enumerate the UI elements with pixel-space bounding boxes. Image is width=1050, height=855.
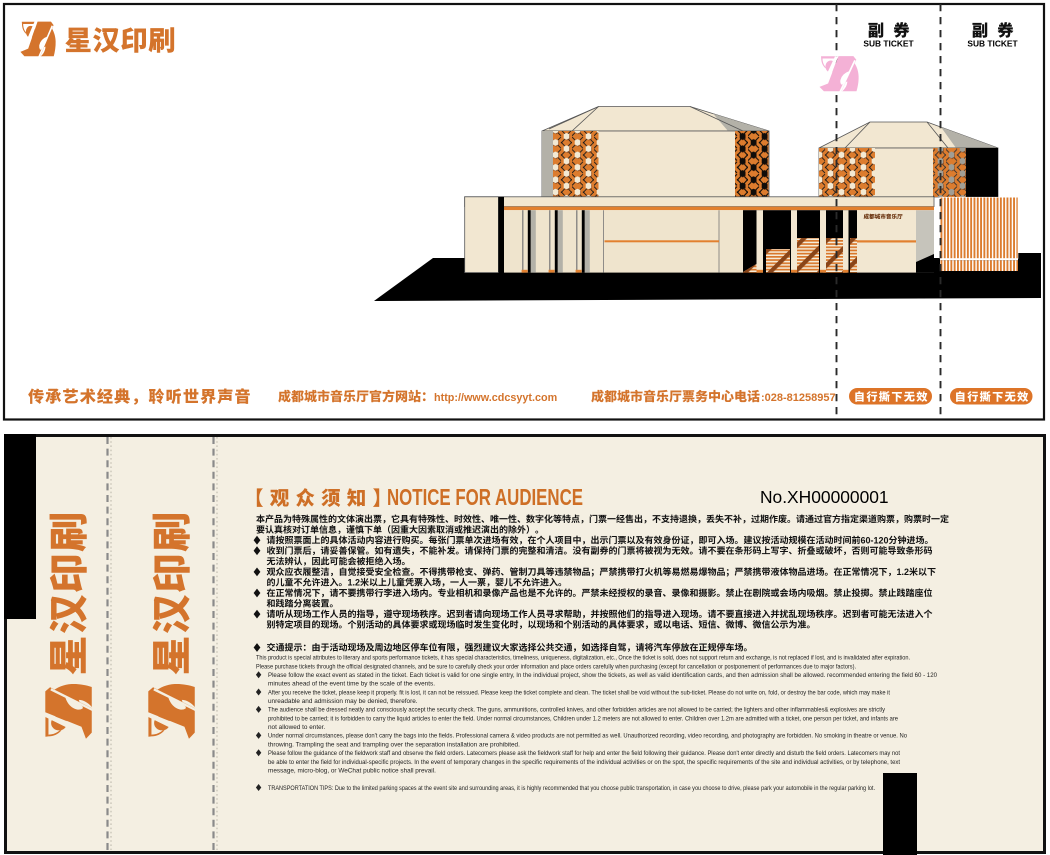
svg-text::028-81258957: :028-81258957 xyxy=(761,392,836,404)
svg-text:SUB TICKET: SUB TICKET xyxy=(863,39,914,49)
svg-text:http://www.cdcsyyt.com: http://www.cdcsyyt.com xyxy=(434,392,557,404)
svg-text:message, micro-blog, or WeChat: message, micro-blog, or WeChat public no… xyxy=(268,767,436,774)
svg-text:No.XH00000001: No.XH00000001 xyxy=(760,487,889,507)
svg-text:SUB TICKET: SUB TICKET xyxy=(967,39,1018,49)
svg-text:Under normal circumstances, pl: Under normal circumstances, please don't… xyxy=(268,733,907,740)
svg-text:Please follow the exact event: Please follow the exact event as stated … xyxy=(268,672,937,679)
svg-text:NOTICE FOR AUDIENCE: NOTICE FOR AUDIENCE xyxy=(387,484,583,510)
svg-text:1.2: 1.2 xyxy=(348,578,361,588)
svg-text:This product is special attrib: This product is special attributes to li… xyxy=(256,655,910,662)
svg-text:After you receive the ticket,: After you receive the ticket, please kee… xyxy=(268,689,890,696)
svg-text:prohibited to be carried; it i: prohibited to be carried; it is forbidde… xyxy=(268,715,898,722)
svg-text:unreadable and admission may b: unreadable and admission may be denied, … xyxy=(268,698,418,705)
svg-text:Please follow the guidance of: Please follow the guidance of the fieldw… xyxy=(268,750,900,757)
svg-text:60-120: 60-120 xyxy=(861,535,889,545)
svg-text:minutes ahead of the event tim: minutes ahead of the event time by the s… xyxy=(268,681,435,688)
svg-text:throwing. Trampling the seat a: throwing. Trampling the seat and trampli… xyxy=(268,741,520,748)
svg-text:1.2: 1.2 xyxy=(897,567,910,577)
svg-text:be able to enter the field for: be able to enter the field for individua… xyxy=(268,759,900,766)
svg-text:The audience shall be dressed: The audience shall be dressed neatly and… xyxy=(268,707,886,714)
svg-text:Please purchase tickets throug: Please purchase tickets through the offi… xyxy=(256,663,856,670)
svg-text:TRANSPORTATION TIPS: Due to th: TRANSPORTATION TIPS: Due to the limited … xyxy=(268,785,875,792)
svg-text:not allowed to enter.: not allowed to enter. xyxy=(268,724,325,731)
